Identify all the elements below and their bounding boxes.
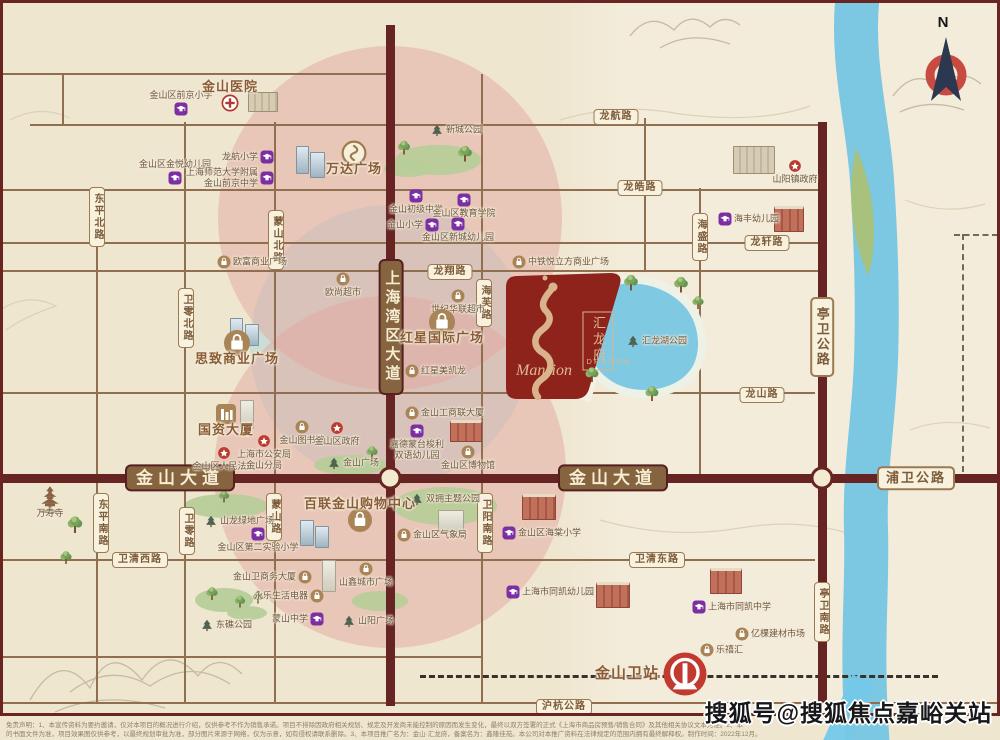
stationIc-icon xyxy=(662,651,708,697)
poi-label: 金山区气象局 xyxy=(413,530,467,541)
poi-label: 中铁悦立方商业广场 xyxy=(528,257,609,268)
poi-label: 金山区第二实验小学 xyxy=(217,542,298,553)
poi-label: 山鑫城市广场 xyxy=(339,577,393,588)
tree-icon xyxy=(623,273,639,297)
shop-icon xyxy=(398,529,411,542)
tree-icon xyxy=(692,295,705,316)
poi-label: 金山广场 xyxy=(343,458,379,469)
poi-label: 金山工商联大厦 xyxy=(421,408,484,419)
shop-icon xyxy=(296,421,309,434)
road-label: 沪杭公路 xyxy=(536,699,592,715)
road-label: 龙山路 xyxy=(740,387,785,403)
shop-icon xyxy=(299,571,312,584)
tree-icon xyxy=(397,139,411,161)
poi-label: 万寿寺 xyxy=(36,508,63,519)
poi-label: 新城公园 xyxy=(446,125,482,136)
poi-label: 金山区海棠小学 xyxy=(518,528,581,539)
edu-icon xyxy=(261,172,274,185)
building xyxy=(315,526,329,548)
poi-label: 上海市公安局金山分局 xyxy=(237,449,291,471)
shop-icon xyxy=(452,290,465,303)
edu-icon xyxy=(311,613,324,626)
park-icon xyxy=(205,515,218,528)
gov-icon xyxy=(258,435,271,448)
north-label: N xyxy=(908,14,978,31)
edu-icon xyxy=(175,103,188,116)
edu-icon xyxy=(507,586,520,599)
road-label: 海盛路 xyxy=(692,213,708,261)
road-label: 浦卫公路 xyxy=(877,466,955,490)
poi-label: 汇龙湖公园 xyxy=(642,336,687,347)
poi-label: 百联金山购物中心 xyxy=(304,496,416,512)
gov-icon xyxy=(218,447,231,460)
building xyxy=(710,568,742,594)
poi-label-line: 金山前京中学 xyxy=(186,178,258,189)
shop-icon xyxy=(736,628,749,641)
shop-icon xyxy=(360,563,373,576)
building xyxy=(322,560,336,592)
road-label: 海芙路 xyxy=(476,279,492,327)
park-icon xyxy=(328,457,341,470)
road-label: 卫清东路 xyxy=(629,552,685,568)
road-minor xyxy=(30,124,820,126)
road-label: 亭卫公路 xyxy=(810,297,834,377)
poi-label: 万达广场 xyxy=(326,161,382,177)
map-canvas: 汇龙府 DRAGON Mansion 龙航路龙皓路龙轩路龙翔路龙山路卫清西路卫清… xyxy=(0,0,1000,740)
edu-icon xyxy=(426,219,439,232)
shop-icon xyxy=(311,590,324,603)
poi-label: 上海市同凯幼儿园 xyxy=(522,587,594,598)
poi-label: 上海市同凯中学 xyxy=(708,602,771,613)
road-label: 东平南路 xyxy=(93,493,109,553)
road-label: 亭卫南路 xyxy=(814,582,830,642)
edu-icon xyxy=(261,151,274,164)
shop-icon xyxy=(406,365,419,378)
road-label-major: 上海湾区大道 xyxy=(379,259,404,395)
edu-icon xyxy=(169,172,182,185)
building xyxy=(733,146,775,174)
poi-label: 亿棵建材市场 xyxy=(751,629,805,640)
edu-icon xyxy=(411,425,424,438)
poi-label: 金山区新城幼儿园 xyxy=(422,232,494,243)
park-icon xyxy=(343,615,356,628)
road-minor xyxy=(481,74,483,703)
shop-icon xyxy=(406,407,419,420)
tree-icon xyxy=(457,144,473,168)
poi-label-line: 上海市公安局 xyxy=(237,449,291,460)
edu-icon xyxy=(693,601,706,614)
tree-icon xyxy=(673,275,689,299)
edu-icon xyxy=(410,190,423,203)
road-minor xyxy=(184,122,186,703)
road-minor xyxy=(3,270,818,272)
road-minor xyxy=(62,74,64,125)
park-icon xyxy=(431,124,444,137)
poi-label-line: 双语幼儿园 xyxy=(390,450,444,461)
poi-label: 永乐生活电器 xyxy=(254,591,308,602)
road-label: 龙翔路 xyxy=(428,264,473,280)
poi-label: 蒙山中学 xyxy=(272,614,308,625)
boundary-dashed-line xyxy=(954,234,998,236)
poi-label: 上海师范大学附属金山前京中学 xyxy=(186,167,258,189)
edu-icon xyxy=(719,213,732,226)
poi-label: 欧富商业广场 xyxy=(233,257,287,268)
edu-icon xyxy=(252,528,265,541)
poi-label: 海丰幼儿园 xyxy=(734,214,779,225)
road-junction-node xyxy=(379,467,402,490)
road-minor xyxy=(3,392,815,394)
tree-icon xyxy=(206,586,219,607)
poi-label-line: 上海师范大学附属 xyxy=(186,167,258,178)
poi-label: 金山医院 xyxy=(202,79,258,95)
compass-icon xyxy=(908,31,978,107)
office-icon xyxy=(216,404,236,424)
shop-icon xyxy=(462,446,475,459)
poi-label: 山阳镇政府 xyxy=(772,174,817,185)
poi-label: 金山区政府 xyxy=(314,436,359,447)
watermark: 搜狐号@搜狐焦点嘉峪关站 xyxy=(690,694,992,728)
road-label: 龙航路 xyxy=(594,109,639,125)
north-indicator: N xyxy=(908,14,978,110)
road-label: 东平北路 xyxy=(89,187,105,247)
poi-label: 东礁公园 xyxy=(216,620,252,631)
road-label: 卫零路 xyxy=(179,507,195,555)
poi-label: 思致商业广场 xyxy=(195,351,279,367)
poi-label: 红星国际广场 xyxy=(400,330,484,346)
poi-label: 金山区博物馆 xyxy=(441,460,495,471)
park-green-patch xyxy=(352,591,408,611)
gov-icon xyxy=(789,160,802,173)
road-minor xyxy=(3,656,482,658)
building xyxy=(310,152,325,178)
boundary-dashed-line xyxy=(962,234,964,472)
hospital-icon xyxy=(222,95,239,112)
poi-label: 国资大厦 xyxy=(198,422,254,438)
building xyxy=(522,494,556,520)
shop-icon xyxy=(513,256,526,269)
edu-icon xyxy=(452,218,465,231)
gov-icon xyxy=(331,422,344,435)
road-label-major: 金山大道 xyxy=(558,464,668,491)
road-minor xyxy=(96,190,98,703)
building xyxy=(248,92,278,112)
road-junction-node xyxy=(811,467,834,490)
poi-label: 欧尚超市 xyxy=(325,287,361,298)
tree-icon xyxy=(585,366,600,389)
shop-icon xyxy=(218,256,231,269)
building xyxy=(300,520,314,546)
tree-icon xyxy=(234,594,246,613)
building xyxy=(596,582,630,608)
park-icon xyxy=(201,619,214,632)
edu-icon xyxy=(503,527,516,540)
poi-label-line: 嘉德蒙台梭利 xyxy=(390,439,444,450)
road-label: 卫零北路 xyxy=(178,288,194,348)
poi-label-line: 金山分局 xyxy=(237,460,291,471)
park-icon xyxy=(627,335,640,348)
tree-icon xyxy=(645,385,660,408)
building xyxy=(296,146,309,174)
edu-icon xyxy=(458,194,471,207)
tree-icon xyxy=(218,489,230,508)
poi-label: 金山卫商务大厦 xyxy=(233,572,296,583)
property-name-en-script: Mansion xyxy=(516,362,572,380)
tree-icon xyxy=(60,550,73,571)
poi-label: 双拥主题公园 xyxy=(426,494,480,505)
poi-label: 山阳广场 xyxy=(358,616,394,627)
shop-icon xyxy=(337,273,350,286)
poi-label: 金山卫站 xyxy=(595,665,659,683)
poi-label: 山龙绿地广场 xyxy=(220,516,274,527)
road-label: 卫清西路 xyxy=(112,552,168,568)
poi-label: 嘉德蒙台梭利双语幼儿园 xyxy=(390,439,444,461)
tree-icon xyxy=(67,514,84,539)
poi-label: 金山小学 xyxy=(387,220,423,231)
road-label: 龙轩路 xyxy=(745,235,790,251)
building xyxy=(450,420,482,442)
road-label: 龙皓路 xyxy=(618,180,663,196)
poi-label: 龙航小学 xyxy=(222,152,258,163)
poi-label: 乐禧汇 xyxy=(716,645,743,656)
poi-label: 红星美凯龙 xyxy=(421,366,466,377)
